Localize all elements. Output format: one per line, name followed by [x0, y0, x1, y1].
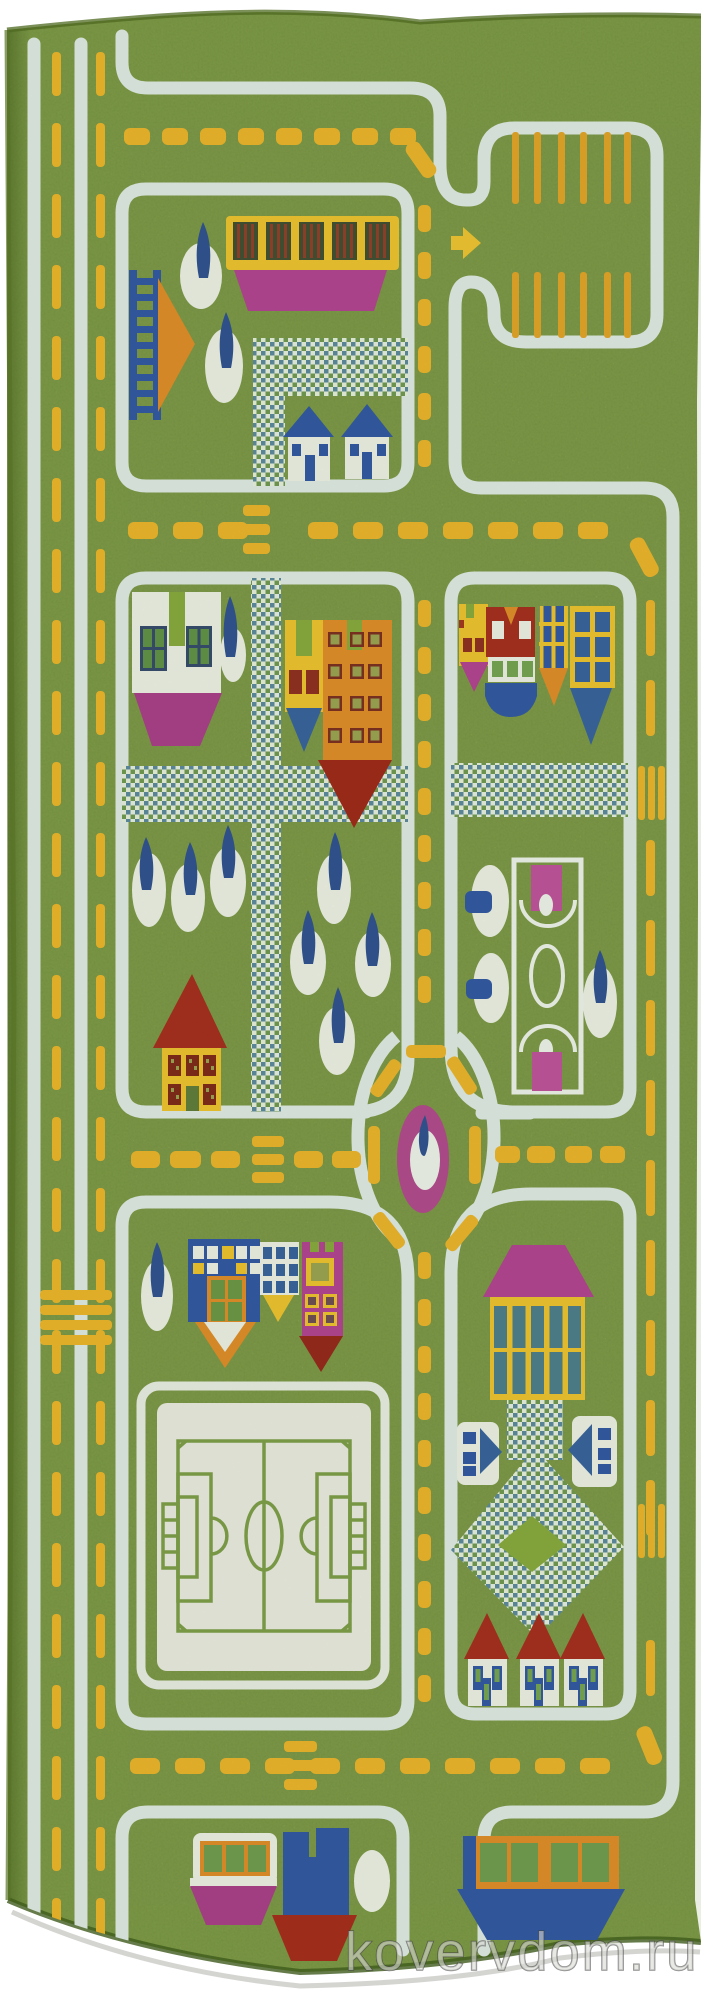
- svg-text:kovervdom.ru: kovervdom.ru: [345, 1922, 699, 1982]
